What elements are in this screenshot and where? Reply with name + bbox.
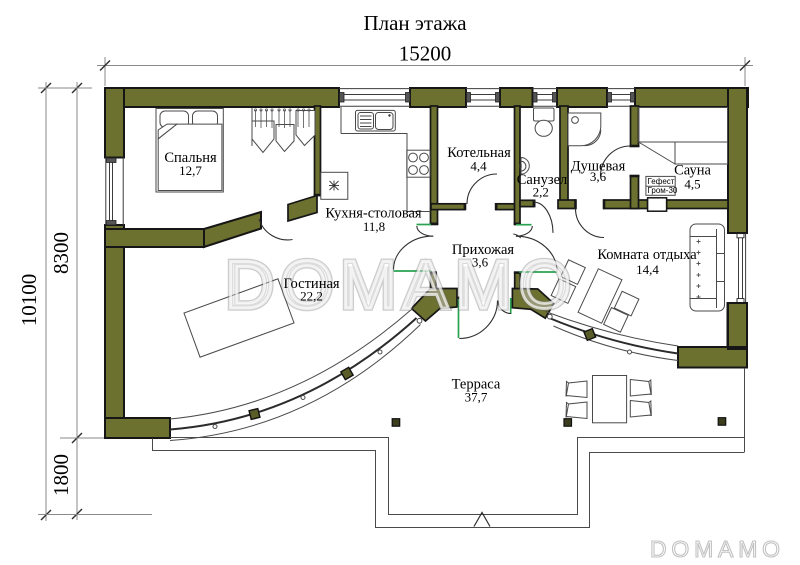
svg-text:Гром-30: Гром-30 [648, 186, 678, 195]
svg-text:2,2: 2,2 [533, 185, 549, 200]
svg-text:DOMAMO: DOMAMO [225, 247, 578, 323]
svg-text:Комната отдыха: Комната отдыха [597, 247, 697, 263]
svg-text:10100: 10100 [17, 274, 41, 327]
svg-text:11,8: 11,8 [363, 219, 385, 234]
svg-text:DOMAMO: DOMAMO [650, 536, 785, 562]
svg-text:37,7: 37,7 [465, 390, 488, 405]
svg-text:План этажа: План этажа [363, 11, 467, 35]
svg-text:4,5: 4,5 [684, 177, 700, 192]
svg-text:3,6: 3,6 [472, 255, 489, 270]
svg-text:3,6: 3,6 [590, 169, 607, 184]
svg-text:1800: 1800 [49, 454, 73, 496]
svg-text:8300: 8300 [49, 232, 73, 274]
svg-text:Гефест: Гефест [648, 177, 675, 186]
svg-text:14,4: 14,4 [636, 262, 659, 277]
svg-text:12,7: 12,7 [179, 163, 202, 178]
svg-text:15200: 15200 [399, 42, 452, 66]
svg-text:22,2: 22,2 [300, 289, 323, 304]
svg-text:4,4: 4,4 [470, 159, 487, 174]
